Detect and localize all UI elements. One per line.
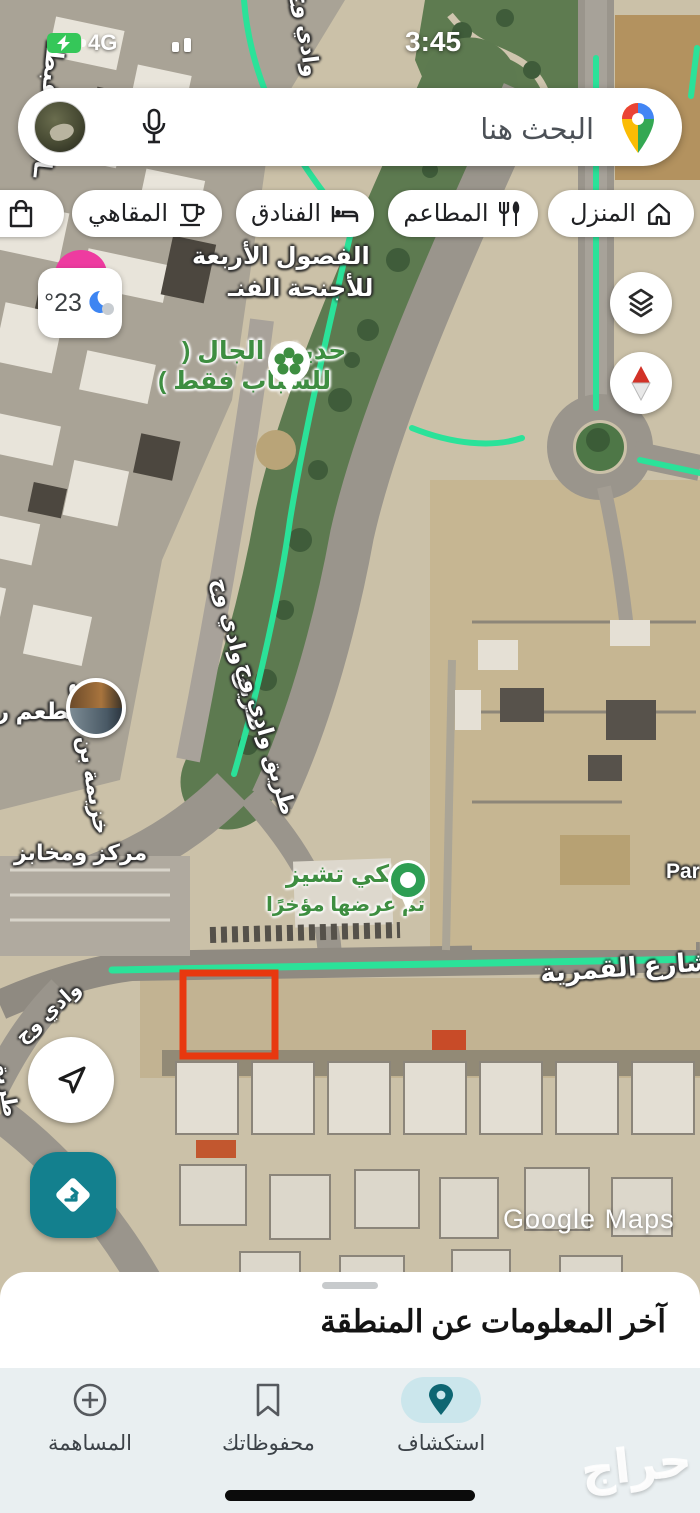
nav-label-saved: محفوظاتك: [222, 1431, 315, 1456]
home-indicator[interactable]: [225, 1490, 475, 1501]
moon-cloud-icon: [86, 289, 116, 317]
nav-item-explore[interactable]: استكشاف: [397, 1377, 485, 1456]
chip-cafes-label: المقاهي: [88, 199, 168, 228]
nav-label-contribute: المساهمة: [48, 1431, 132, 1456]
contribute-plus-icon: [72, 1382, 108, 1418]
active-nav-pill: [401, 1377, 481, 1423]
chip-cafes[interactable]: المقاهي: [72, 190, 222, 237]
explore-pin-icon: [428, 1384, 454, 1416]
network-type-label: 4G: [88, 30, 117, 56]
nav-item-contribute[interactable]: المساهمة: [48, 1377, 132, 1456]
bottom-sheet[interactable]: آخر المعلومات عن المنطقة: [0, 1272, 700, 1368]
google-maps-watermark: Google Maps: [503, 1204, 675, 1235]
directions-icon: [50, 1172, 96, 1218]
my-location-button[interactable]: [28, 1037, 114, 1123]
nav-label-explore: استكشاف: [397, 1431, 485, 1456]
signal-bars-icon: [172, 42, 179, 52]
layers-button[interactable]: [610, 272, 672, 334]
restaurant-photo-marker[interactable]: [66, 678, 126, 738]
map-label-par: Par: [666, 860, 700, 884]
chip-restaurants[interactable]: المطاعم: [388, 190, 538, 237]
compass-icon: [628, 365, 654, 401]
cafes-icon: [178, 201, 206, 227]
battery-charging-icon: [47, 33, 81, 53]
temperature-label: °23: [44, 289, 82, 318]
account-avatar[interactable]: [34, 101, 86, 153]
directions-button[interactable]: [30, 1152, 116, 1238]
google-maps-pin-logo[interactable]: [618, 102, 658, 154]
chip-restaurants-label: المطاعم: [403, 199, 488, 228]
google-maps-app: ـارية القبطـ الفصول الأربعة للأجنحة الفن…: [0, 0, 700, 1513]
park-pin-icon[interactable]: [266, 340, 312, 396]
shopping-bag-icon: [8, 200, 34, 228]
map-label-bakery-center: مركز ومخابز: [14, 840, 147, 866]
map-label-park[interactable]: حديقة الجال (: [182, 336, 346, 366]
chip-shopping[interactable]: ال: [0, 190, 64, 237]
map-label-four-seasons: الفصول الأربعة: [192, 242, 370, 271]
recently-viewed-pin-icon[interactable]: [386, 858, 430, 914]
nav-item-saved[interactable]: محفوظاتك: [222, 1377, 315, 1456]
map-label-four-seasons-2: للأجنحة الفنـ: [228, 274, 373, 303]
status-bar: 4G 3:45: [0, 0, 700, 60]
my-location-arrow-icon: [51, 1060, 91, 1100]
hotels-icon: [331, 202, 359, 226]
bookmark-icon: [255, 1383, 281, 1417]
microphone-icon[interactable]: [140, 108, 168, 146]
compass-button[interactable]: [610, 352, 672, 414]
chip-hotels-label: الفنادق: [251, 199, 321, 228]
haraj-watermark: حراج: [579, 1432, 695, 1497]
search-input[interactable]: البحث هنا: [480, 112, 594, 147]
chip-home[interactable]: المنزل: [548, 190, 694, 237]
chip-home-label: المنزل: [570, 199, 636, 228]
chip-hotels[interactable]: الفنادق: [236, 190, 374, 237]
home-icon: [646, 201, 672, 227]
layers-icon: [626, 288, 656, 318]
restaurants-icon: [499, 201, 523, 227]
sheet-drag-handle[interactable]: [322, 1282, 378, 1289]
weather-widget[interactable]: °23: [38, 268, 122, 338]
sheet-title: آخر المعلومات عن المنطقة: [320, 1304, 666, 1340]
search-bar[interactable]: البحث هنا: [18, 88, 682, 166]
clock-time: 3:45: [405, 26, 461, 58]
